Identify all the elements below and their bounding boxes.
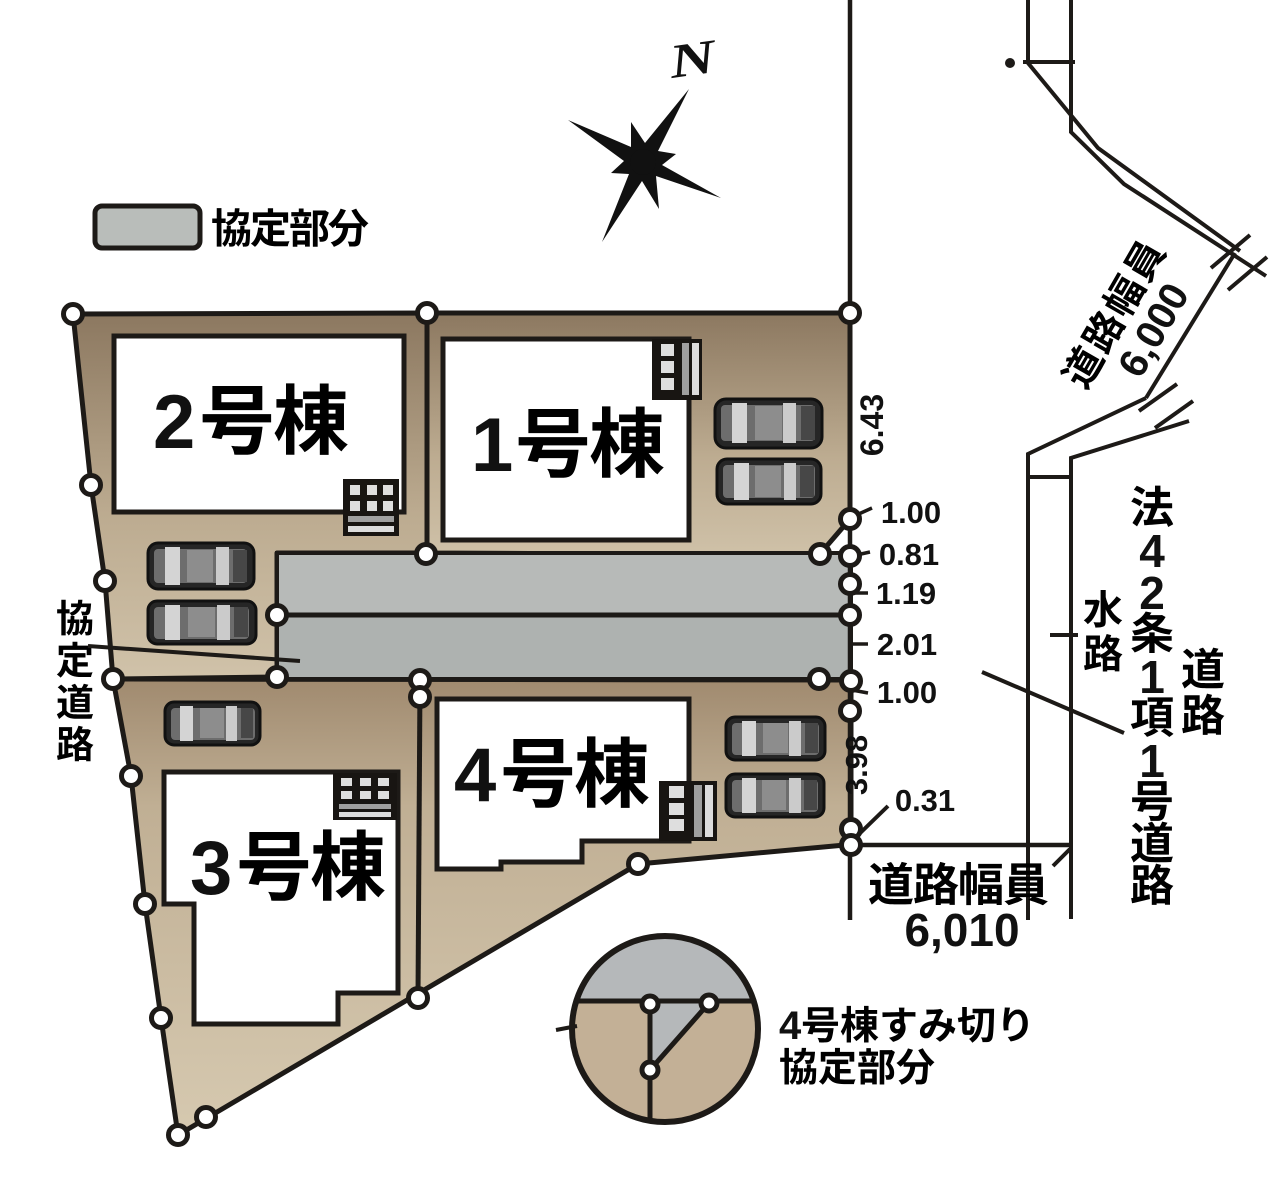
svg-text:3.98: 3.98 bbox=[839, 735, 874, 795]
svg-text:4: 4 bbox=[779, 1004, 802, 1048]
svg-text:6.43: 6.43 bbox=[854, 394, 890, 456]
svg-text:1.00: 1.00 bbox=[877, 675, 937, 710]
svg-text:4: 4 bbox=[454, 733, 496, 818]
svg-text:6,010: 6,010 bbox=[904, 904, 1019, 956]
svg-text:0.81: 0.81 bbox=[879, 537, 939, 572]
svg-text:0.31: 0.31 bbox=[895, 783, 955, 818]
svg-text:1.19: 1.19 bbox=[876, 576, 936, 611]
svg-text:1.00: 1.00 bbox=[881, 495, 941, 530]
svg-text:2: 2 bbox=[1139, 567, 1165, 619]
svg-text:1: 1 bbox=[1139, 735, 1165, 787]
svg-text:1: 1 bbox=[1139, 651, 1165, 703]
svg-text:2: 2 bbox=[153, 380, 195, 465]
svg-text:3: 3 bbox=[190, 826, 232, 911]
svg-text:1: 1 bbox=[471, 403, 513, 488]
svg-text:2.01: 2.01 bbox=[877, 627, 937, 662]
